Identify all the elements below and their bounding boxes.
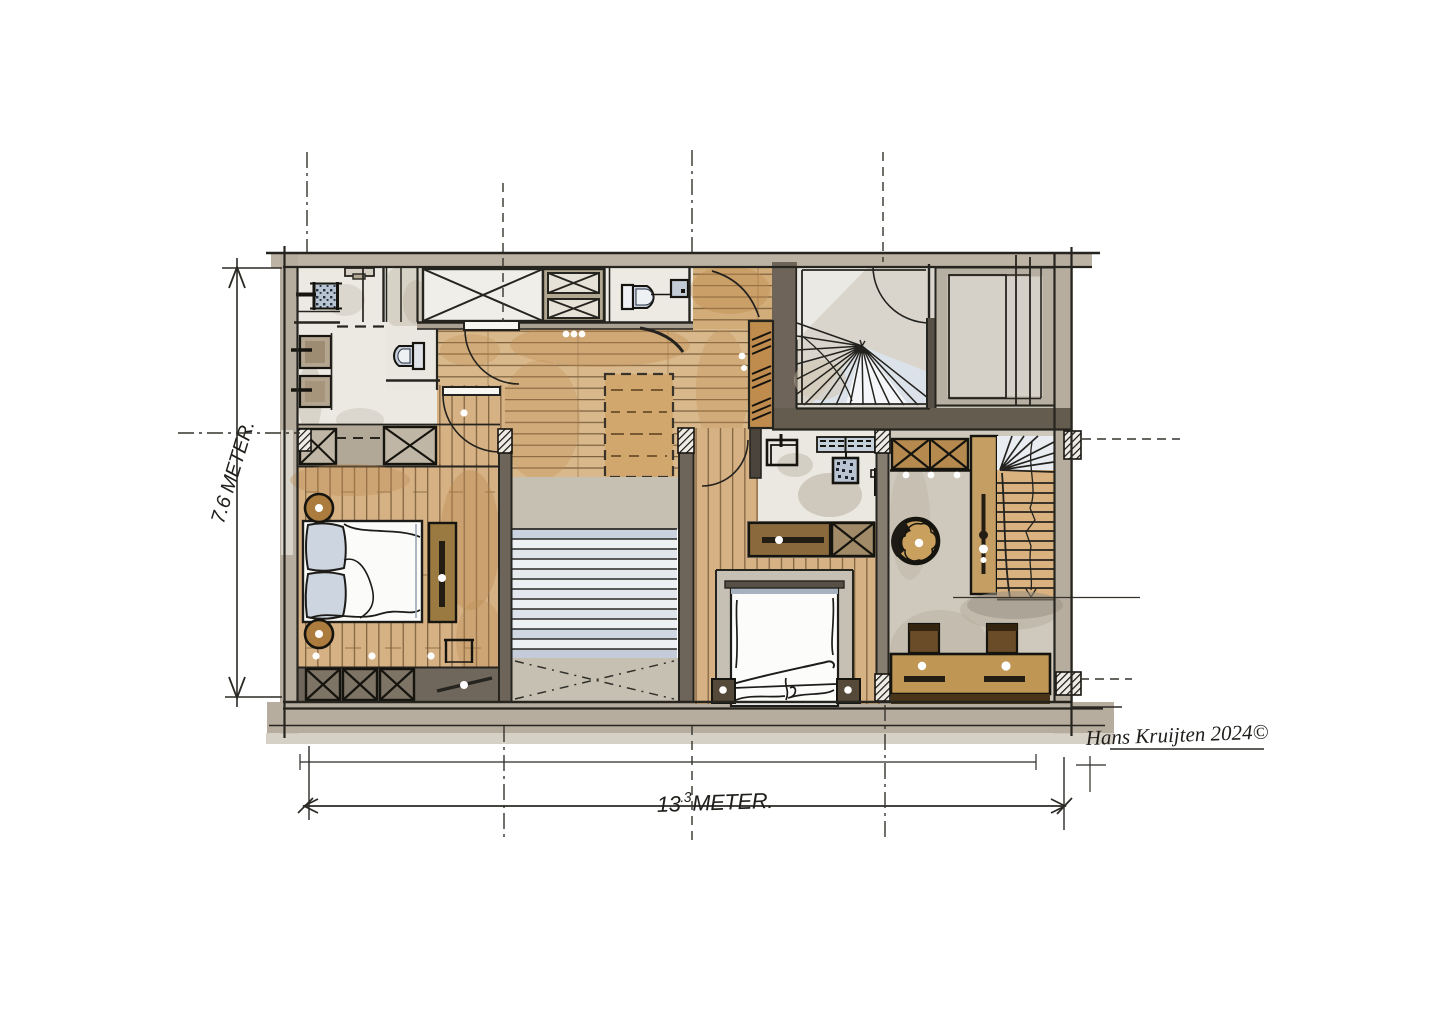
svg-text:13.3METER.: 13.3METER. <box>656 786 773 817</box>
